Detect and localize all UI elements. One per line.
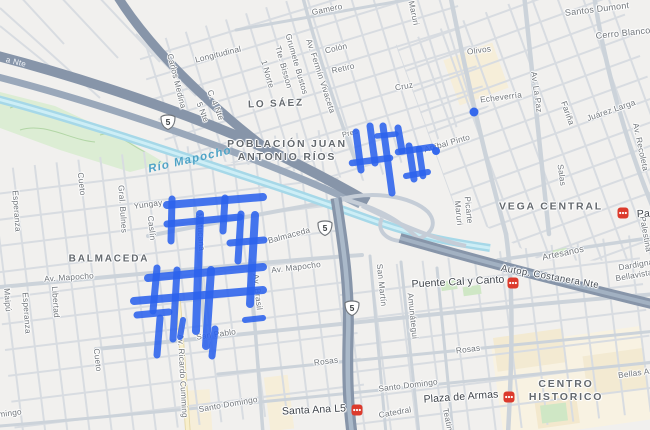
base-map-layer [0,0,650,430]
map-canvas[interactable]: GameroLongitudinalCarlos MedinaC. 4 Nte5… [0,0,650,430]
